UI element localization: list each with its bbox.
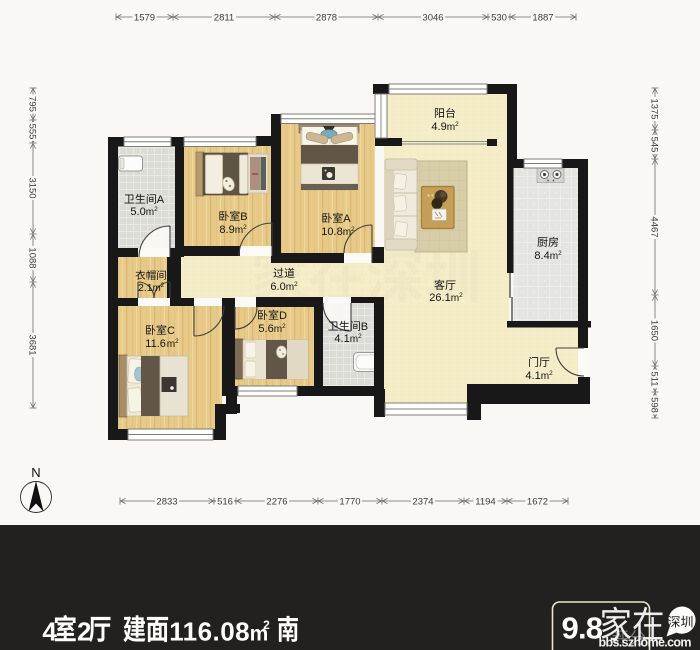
svg-text:C: C xyxy=(167,325,175,337)
svg-text:m: m xyxy=(541,371,549,382)
svg-text:2: 2 xyxy=(459,292,463,299)
svg-text:bbs.szhome.com: bbs.szhome.com xyxy=(599,636,692,650)
svg-text:9.8: 9.8 xyxy=(562,611,604,646)
svg-text:2: 2 xyxy=(175,338,179,345)
svg-text:2878: 2878 xyxy=(316,12,337,23)
svg-text:3681: 3681 xyxy=(27,334,38,355)
svg-text:2: 2 xyxy=(358,333,362,340)
svg-text:4.1: 4.1 xyxy=(334,333,349,345)
svg-text:1375: 1375 xyxy=(649,98,660,119)
svg-text:1088: 1088 xyxy=(27,247,38,268)
svg-text:11.6: 11.6 xyxy=(145,338,166,350)
svg-text:511: 511 xyxy=(649,371,660,386)
svg-text:8.4: 8.4 xyxy=(534,250,549,262)
svg-text:2: 2 xyxy=(294,281,298,288)
svg-text:m: m xyxy=(550,251,558,262)
svg-text:2: 2 xyxy=(282,323,286,330)
svg-text:6.0: 6.0 xyxy=(270,281,285,293)
svg-text:m: m xyxy=(286,282,294,293)
svg-text:2: 2 xyxy=(455,121,459,128)
svg-text:m: m xyxy=(146,207,154,218)
svg-text:m: m xyxy=(167,339,175,350)
svg-text:4.1: 4.1 xyxy=(525,370,540,382)
svg-text:B: B xyxy=(240,211,247,223)
svg-text:2: 2 xyxy=(263,618,270,632)
svg-text:545: 545 xyxy=(649,137,660,153)
svg-text:116.08: 116.08 xyxy=(169,617,249,647)
svg-text:2: 2 xyxy=(243,224,247,231)
svg-text:4467: 4467 xyxy=(649,216,660,237)
svg-text:2.1: 2.1 xyxy=(138,282,153,294)
svg-text:26.1: 26.1 xyxy=(429,292,450,304)
svg-text:598: 598 xyxy=(649,397,660,413)
svg-text:m: m xyxy=(235,225,243,236)
svg-text:2: 2 xyxy=(77,617,91,647)
svg-text:1194: 1194 xyxy=(475,496,495,507)
svg-text:2811: 2811 xyxy=(214,12,234,23)
svg-text:2276: 2276 xyxy=(266,496,287,507)
svg-text:2: 2 xyxy=(549,370,553,377)
svg-text:m: m xyxy=(153,283,161,294)
svg-text:m: m xyxy=(447,122,455,133)
svg-text:2833: 2833 xyxy=(156,496,177,507)
svg-text:A: A xyxy=(343,213,351,225)
svg-text:530: 530 xyxy=(491,12,507,23)
svg-text:1887: 1887 xyxy=(532,12,553,23)
svg-text:2: 2 xyxy=(154,206,158,213)
svg-text:4.9: 4.9 xyxy=(431,121,446,133)
svg-text:1650: 1650 xyxy=(649,320,660,341)
svg-text:2: 2 xyxy=(558,250,562,257)
svg-text:1672: 1672 xyxy=(527,496,548,507)
svg-text:8.9: 8.9 xyxy=(219,224,234,236)
svg-text:795: 795 xyxy=(27,96,38,112)
svg-text:3046: 3046 xyxy=(422,12,443,23)
svg-text:m: m xyxy=(343,227,351,238)
svg-text:10.8: 10.8 xyxy=(321,226,342,238)
svg-text:m: m xyxy=(350,334,358,345)
svg-text:D: D xyxy=(279,310,287,322)
svg-text:1579: 1579 xyxy=(134,12,155,23)
svg-text:N: N xyxy=(31,465,40,480)
svg-text:B: B xyxy=(361,321,368,333)
svg-text:m: m xyxy=(451,293,459,304)
svg-text:516: 516 xyxy=(217,496,233,507)
svg-text:5.6: 5.6 xyxy=(258,323,273,335)
svg-text:555: 555 xyxy=(27,124,38,140)
svg-text:5.0: 5.0 xyxy=(130,206,145,218)
svg-text:2374: 2374 xyxy=(412,496,433,507)
svg-text:2: 2 xyxy=(351,226,355,233)
svg-text:m: m xyxy=(274,324,282,335)
svg-text:3150: 3150 xyxy=(27,177,38,198)
svg-text:1770: 1770 xyxy=(339,496,360,507)
svg-text:A: A xyxy=(157,194,165,206)
